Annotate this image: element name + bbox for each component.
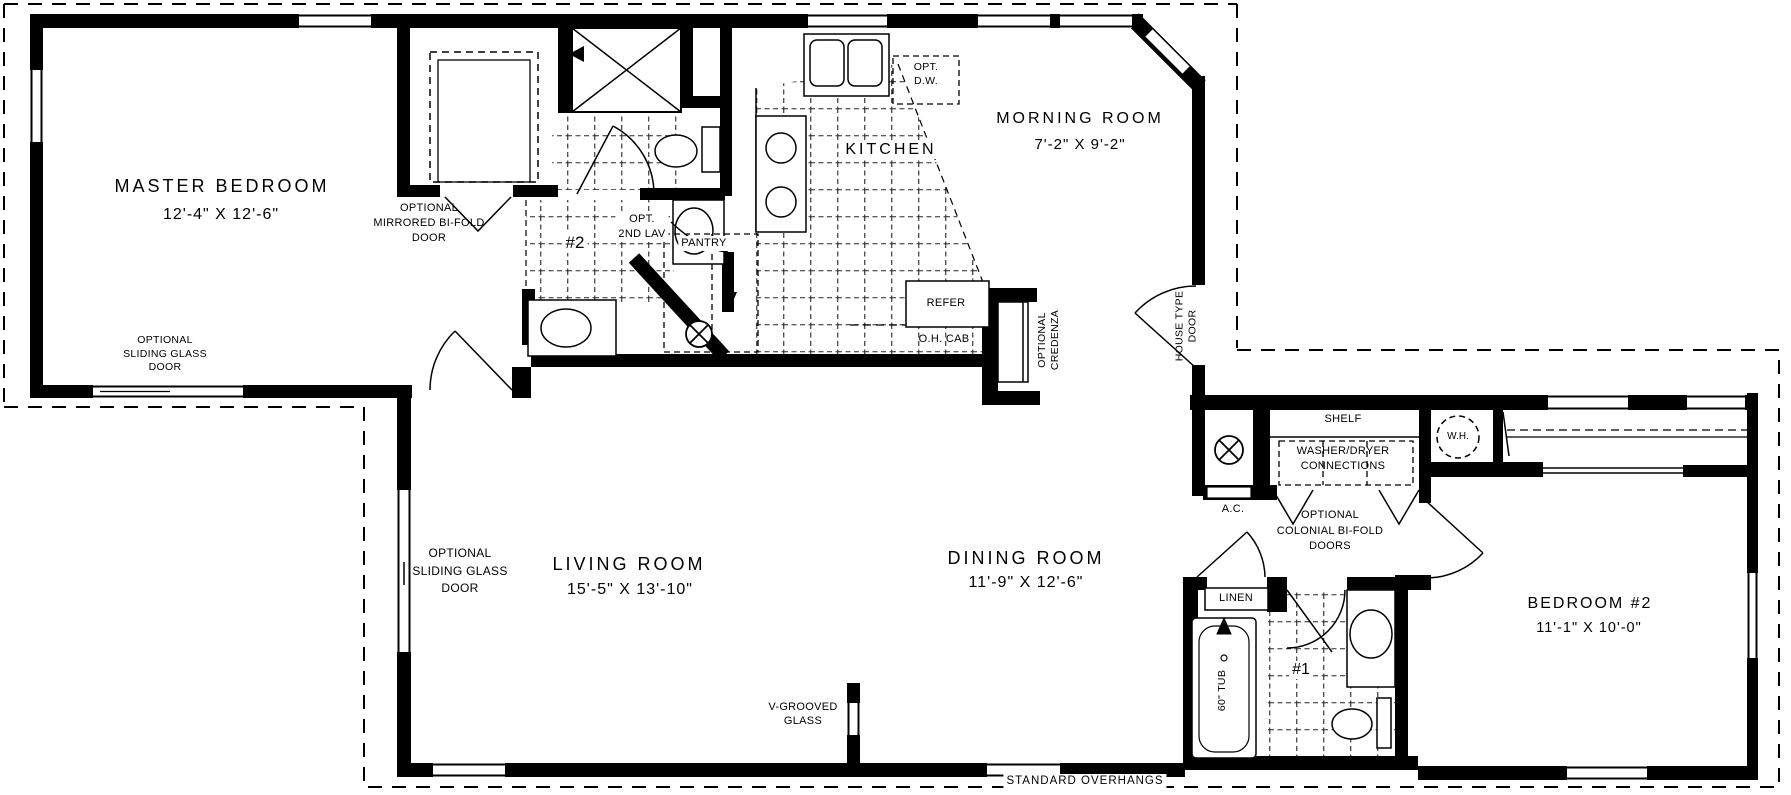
dining-room-dims: 11'-9" X 12'-6" (969, 574, 1084, 592)
house-type-door-label: HOUSE TYPE DOOR (1143, 287, 1229, 365)
window (30, 70, 43, 142)
window (978, 14, 1050, 28)
bedroom2-dims: 11'-1" X 10'-0" (1536, 620, 1642, 636)
standard-overhangs-label: STANDARD OVERHANGS (1003, 774, 1166, 789)
opt-dw-label: OPT. D.W. (914, 60, 939, 88)
sliding-glass-door-living (397, 490, 411, 652)
window (1747, 573, 1758, 658)
kitchen-label: KITCHEN (842, 141, 939, 159)
hall-door (1197, 532, 1265, 577)
bath2-number-label: #2 (563, 233, 588, 253)
master-bedroom-door (430, 331, 512, 390)
colonial-bifold-label: OPTIONAL COLONIAL BI-FOLD DOORS (1277, 508, 1383, 555)
morning-room-label: MORNING ROOM (996, 110, 1164, 128)
optional-mirrored-bifold-label: OPTIONAL MIRRORED BI-FOLD DOOR (373, 201, 484, 246)
wh-label: W.H. (1447, 431, 1469, 442)
window (433, 763, 505, 777)
ac-unit (1215, 436, 1243, 464)
bifold-door-symbol (1379, 490, 1419, 524)
v-grooved-glass-window (847, 703, 860, 735)
optional-sliding-glass-master-label: OPTIONAL SLIDING GLASS DOOR (123, 334, 207, 375)
window (1687, 395, 1745, 410)
sliding-glass-door-master (93, 385, 243, 398)
window (1567, 766, 1647, 780)
oh-cab-label: O.H. CAB (919, 332, 970, 347)
master-bath-sink (528, 300, 616, 356)
living-room-dims: 15'-5" X 13'-10" (567, 581, 693, 599)
window (299, 14, 371, 28)
master-bedroom-label: MASTER BEDROOM (114, 176, 329, 197)
tub-60-label: 60" TUB (1191, 658, 1255, 722)
shelf-label: SHELF (1325, 412, 1362, 427)
refer-label: REFER (927, 296, 966, 311)
v-grooved-glass-label: V-GROOVED GLASS (768, 700, 837, 728)
window (808, 14, 887, 28)
bedroom2-label: BEDROOM #2 (1528, 595, 1653, 613)
living-room-label: LIVING ROOM (552, 554, 705, 575)
chamfer-wall (1133, 19, 1200, 86)
linen-label: LINEN (1219, 591, 1253, 606)
floor-plan: MASTER BEDROOM 12'-4" X 12'-6" MORNING R… (0, 0, 1791, 795)
washer-dryer-label: WASHER/DRYER CONNECTIONS (1297, 444, 1390, 474)
ceiling-fixture-icon (686, 321, 712, 347)
dining-room-label: DINING ROOM (948, 548, 1105, 569)
bedroom2-door (1425, 500, 1483, 578)
optional-credenza-label: OPTIONAL CREDENZA (1009, 301, 1089, 379)
opt-2nd-lav-label: OPT. 2ND LAV (615, 212, 668, 242)
window (1548, 395, 1628, 410)
optional-sliding-glass-living-label: OPTIONAL SLIDING GLASS DOOR (412, 545, 507, 598)
window (1060, 14, 1132, 28)
bath1-sink (1347, 590, 1395, 687)
opt-2nd-lav-sink (673, 200, 724, 264)
ac-label: A.C. (1222, 502, 1245, 517)
bypass-doors (1543, 468, 1687, 473)
floor-plan-drawing (0, 0, 1791, 795)
morning-room-dims: 7'-2" X 9'-2" (1034, 136, 1125, 153)
pantry-label: PANTRY (678, 236, 729, 251)
ac-vent (1207, 487, 1251, 498)
master-bedroom-dims: 12'-4" X 12'-6" (163, 206, 279, 224)
bath1-number-label: #1 (1289, 661, 1313, 679)
shower (558, 28, 681, 112)
